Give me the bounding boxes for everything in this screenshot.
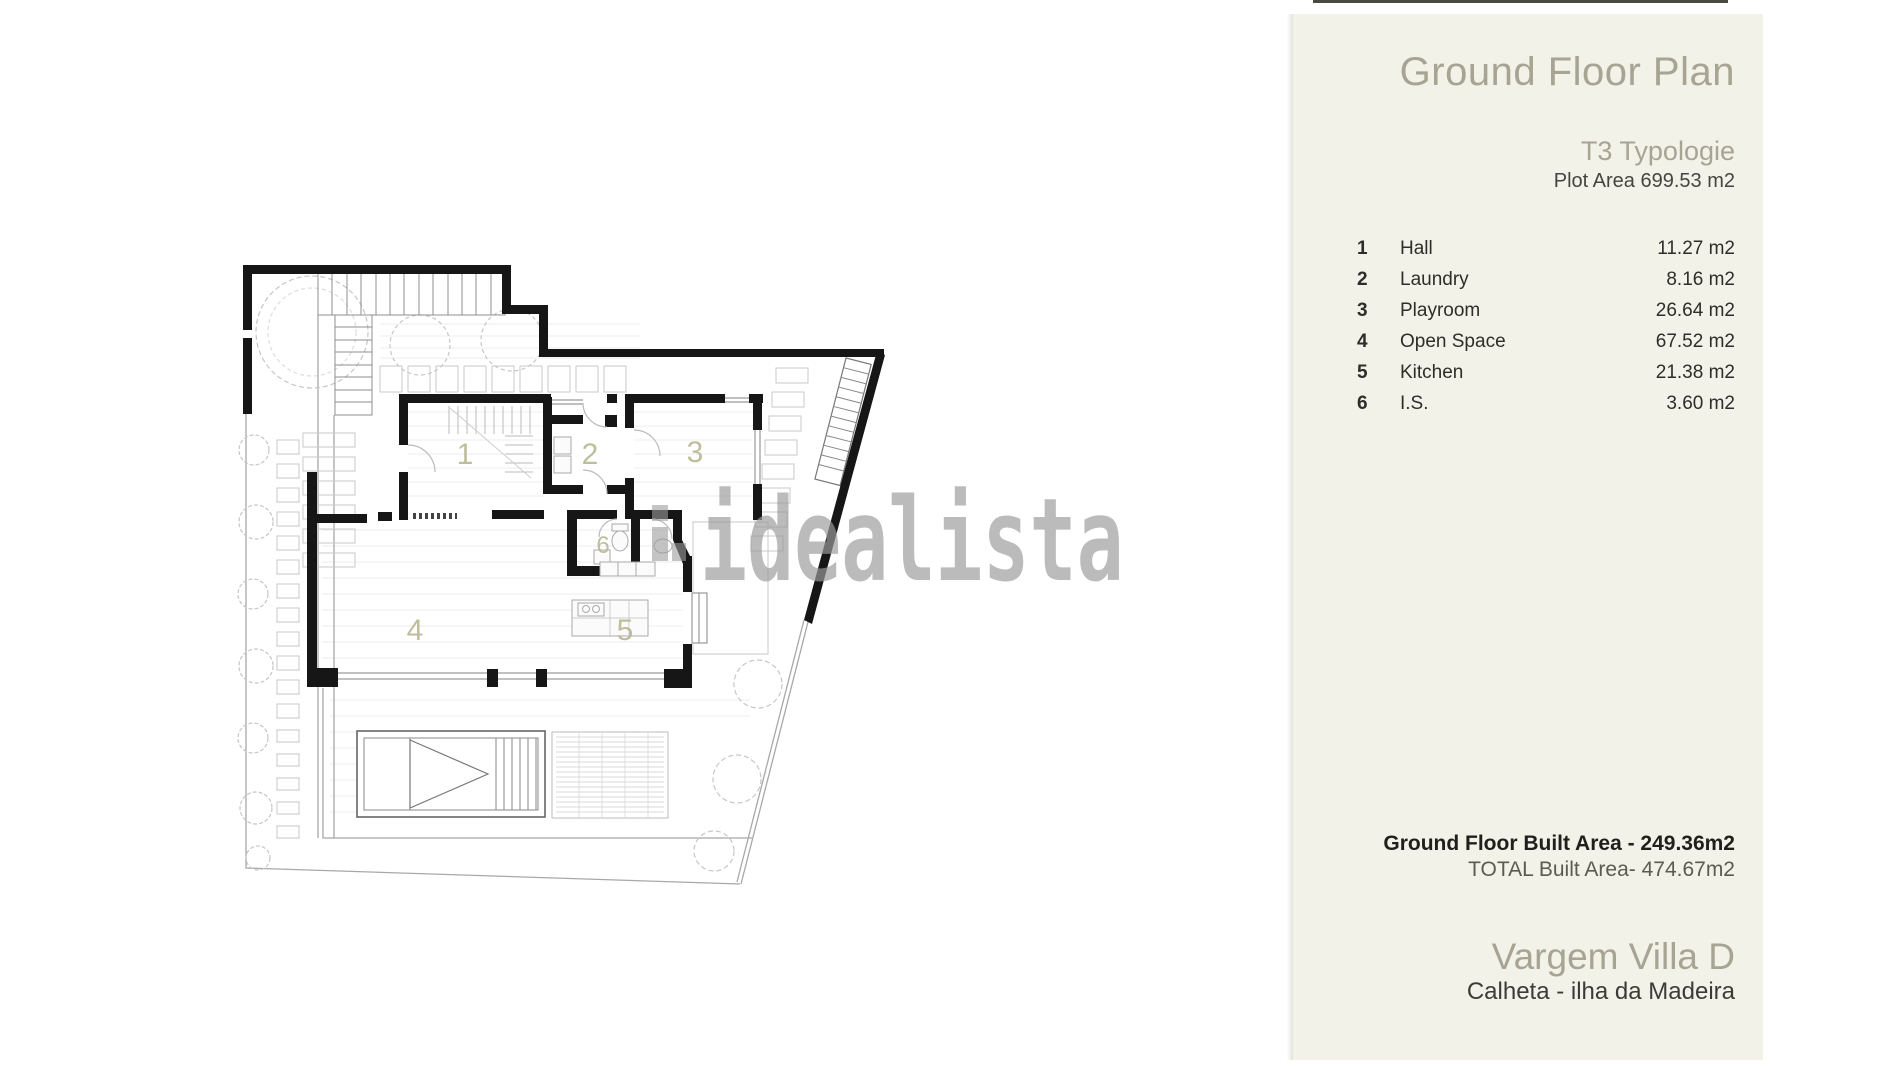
room-number: 2	[1357, 269, 1368, 291]
room-label-openspace: 4	[407, 614, 424, 647]
room-area: 8.16 m2	[1666, 269, 1735, 291]
stairs-top	[318, 270, 505, 315]
villa-name: Vargem Villa D	[1293, 936, 1763, 978]
watermark: idealista	[652, 475, 1124, 608]
villa-location: Calheta - ilha da Madeira	[1293, 978, 1763, 1006]
toilet-tank-icon	[612, 524, 628, 531]
room-label-kitchen: 5	[617, 614, 634, 647]
table-row: 2 Laundry 8.16 m2	[1293, 269, 1763, 300]
room-area: 21.38 m2	[1656, 362, 1735, 384]
room-name: Kitchen	[1400, 362, 1463, 384]
stairs-left	[335, 315, 372, 415]
room-label-playroom: 3	[687, 436, 704, 469]
dryer-icon	[554, 456, 571, 473]
room-label-is: 6	[596, 532, 609, 559]
room-number: 1	[1357, 238, 1368, 260]
table-row: 6 I.S. 3.60 m2	[1293, 393, 1763, 424]
top-edge-artifact	[1313, 0, 1728, 3]
room-area: 67.52 m2	[1656, 331, 1735, 353]
table-row: 3 Playroom 26.64 m2	[1293, 300, 1763, 331]
pool	[357, 731, 545, 817]
screenshot-root: 1 2 3 4 5 6 idealista Ground Floor Plan …	[0, 0, 1883, 1080]
room-number: 3	[1357, 300, 1368, 322]
room-area: 26.64 m2	[1656, 300, 1735, 322]
room-name: I.S.	[1400, 393, 1429, 415]
room-name: Playroom	[1400, 300, 1480, 322]
total-built-area-label: TOTAL Built Area- 474.67m2	[1293, 858, 1763, 882]
deck	[552, 732, 668, 818]
room-number: 4	[1357, 331, 1368, 353]
idealista-watermark-text: idealista	[700, 475, 1124, 608]
page-title: Ground Floor Plan	[1293, 50, 1763, 95]
kitchen-counter	[600, 562, 655, 576]
room-area: 11.27 m2	[1657, 238, 1735, 260]
room-name: Hall	[1400, 238, 1433, 260]
floor-plan: 1 2 3 4 5 6 idealista	[0, 0, 1290, 1080]
room-number: 6	[1357, 393, 1368, 415]
room-area: 3.60 m2	[1666, 393, 1735, 415]
washer-icon	[554, 437, 571, 454]
room-label-hall: 1	[457, 438, 474, 471]
room-name: Laundry	[1400, 269, 1469, 291]
left-planter-column	[277, 440, 299, 838]
stove-icon	[578, 603, 604, 616]
plot-area-label: Plot Area 699.53 m2	[1293, 170, 1763, 193]
table-row: 1 Hall 11.27 m2	[1293, 238, 1763, 269]
room-number: 5	[1357, 362, 1368, 384]
toilet-icon	[612, 531, 628, 551]
room-name: Open Space	[1400, 331, 1506, 353]
info-panel: Ground Floor Plan T3 Typologie Plot Area…	[1293, 14, 1763, 1060]
built-area-label: Ground Floor Built Area - 249.36m2	[1293, 832, 1763, 856]
table-row: 4 Open Space 67.52 m2	[1293, 331, 1763, 362]
table-row: 5 Kitchen 21.38 m2	[1293, 362, 1763, 393]
typology-label: T3 Typologie	[1293, 136, 1763, 167]
room-label-laundry: 2	[582, 438, 599, 471]
